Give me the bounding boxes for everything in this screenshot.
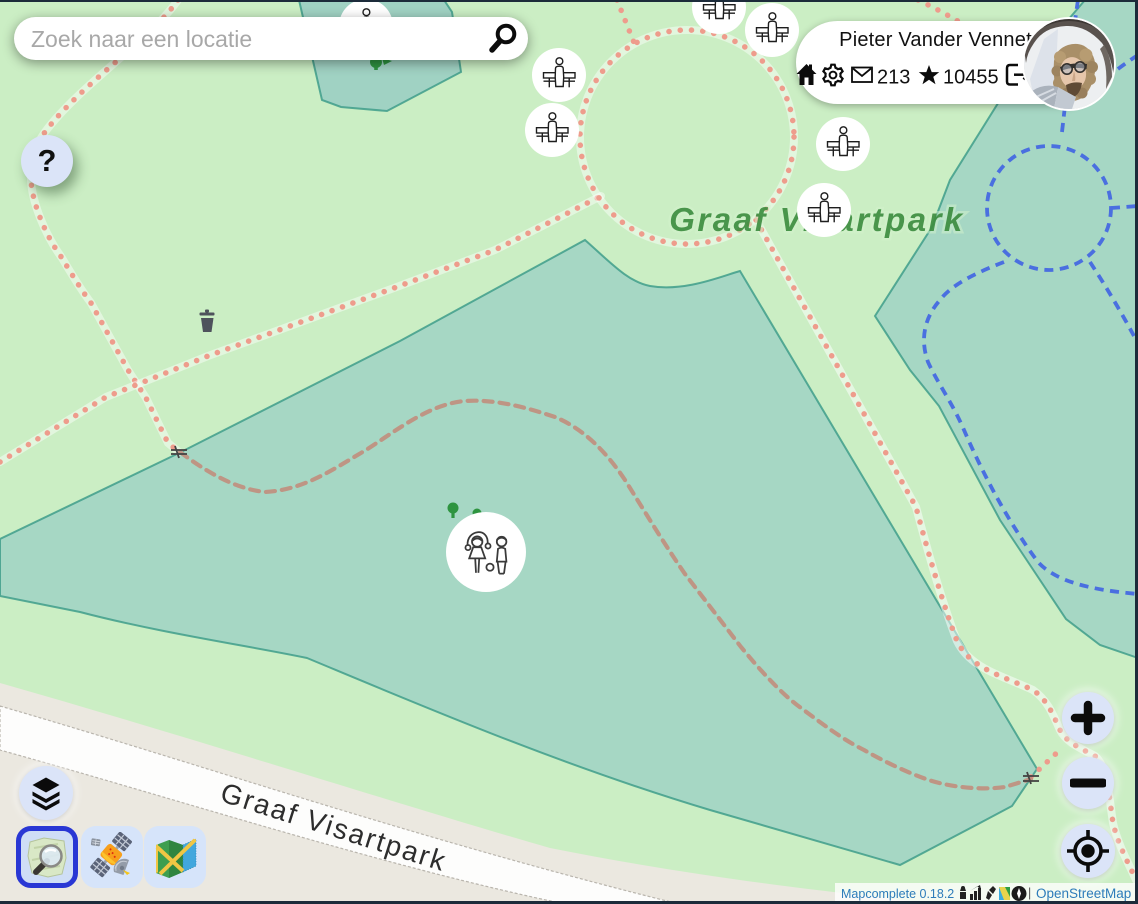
svg-text:10455: 10455: [943, 67, 999, 89]
svg-text:213: 213: [877, 67, 910, 89]
